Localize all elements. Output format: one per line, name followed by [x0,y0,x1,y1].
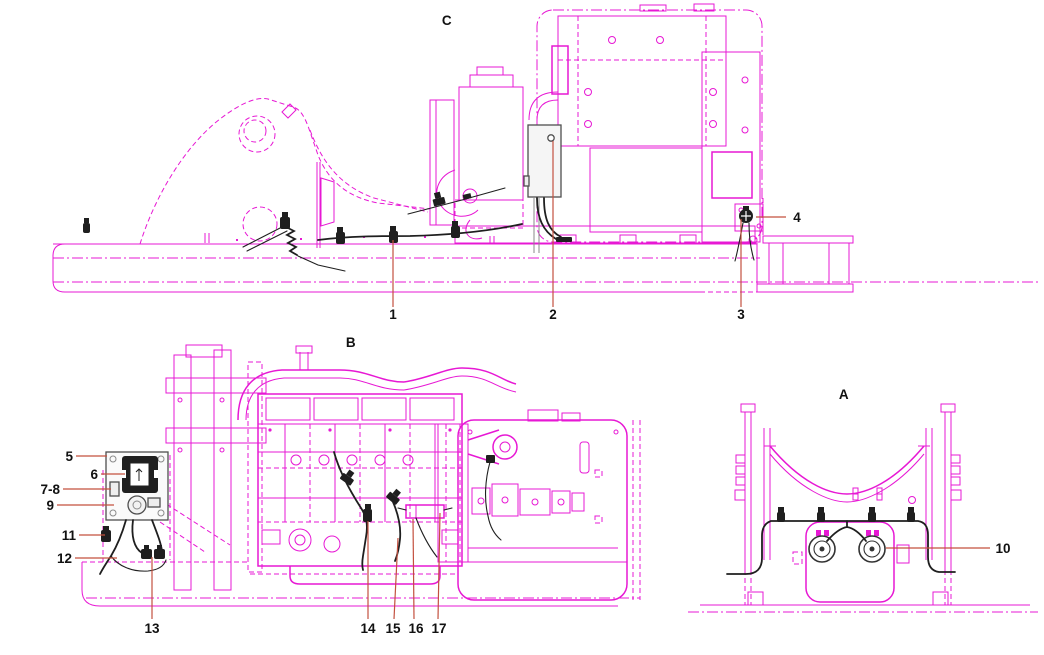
harness-clamp [340,468,358,486]
harness-connectors [141,545,165,559]
center-mount-plate [793,522,909,602]
ecu-unit [122,456,158,493]
hydraulic-tank [458,410,640,600]
callout-13-number: 13 [144,621,160,636]
callout-15-number: 15 [385,621,401,636]
harness-clamp [386,487,404,505]
callout-1-number: 1 [389,307,397,322]
controller-wiring [100,520,166,574]
view-a-label: A [839,387,849,402]
callout-14-number: 14 [360,621,376,636]
saddle-crossmember [764,446,930,504]
support-stand [749,236,853,292]
engine-block [258,394,462,584]
callout-17-number: 17 [431,621,446,636]
callout-11-number: 11 [62,528,77,543]
callout-3: 3 [737,219,745,322]
callout-6-number: 6 [90,467,98,482]
callout-15: 15 [385,538,401,636]
parts-diagram-page: C 1 2 3 4 [0,0,1044,655]
view-b: B 5 6 7-8 9 11 12 13 [40,335,640,636]
controller-box [106,452,168,520]
callout-1: 1 [389,240,397,322]
callout-2-number: 2 [549,307,557,322]
callout-12: 12 [57,551,117,566]
engine-harness [334,452,501,570]
callout-7-8-number: 7-8 [40,482,60,497]
callout-5: 5 [65,449,107,464]
frame-columns [735,404,961,605]
callout-14: 14 [360,521,376,636]
view-c-label: C [442,13,452,28]
horn-right [859,536,885,562]
callout-11: 11 [62,528,105,543]
harness-clamp [777,507,915,522]
callout-9: 9 [46,498,114,513]
horns [809,521,885,562]
intake-pipes [238,346,516,420]
frame-harness-c [83,188,754,271]
callout-10: 10 [886,541,1011,556]
callout-10-number: 10 [995,541,1010,556]
frame-harness-a [727,507,955,574]
engine-assembly-c [430,4,763,253]
callout-4-number: 4 [793,210,801,225]
callout-16-number: 16 [408,621,424,636]
view-c: C 1 2 3 4 [53,4,1038,322]
base-platform [53,233,1038,292]
callout-3-number: 3 [737,307,745,322]
view-a: A 10 [688,387,1038,612]
harness-clamp [363,504,372,522]
harness-clamp [336,221,460,244]
callout-16: 16 [408,519,424,636]
callout-5-number: 5 [65,449,73,464]
callout-12-number: 12 [57,551,72,566]
parts-diagram-canvas: C 1 2 3 4 [0,0,1044,655]
horn-left [809,536,835,562]
callout-7-8: 7-8 [40,482,111,497]
view-b-label: B [346,335,356,350]
hydraulic-pump [472,484,584,516]
callout-9-number: 9 [46,498,54,513]
flywheel-housing [438,424,517,562]
bolt-symbols [585,37,717,128]
harness-clamp [431,191,446,207]
